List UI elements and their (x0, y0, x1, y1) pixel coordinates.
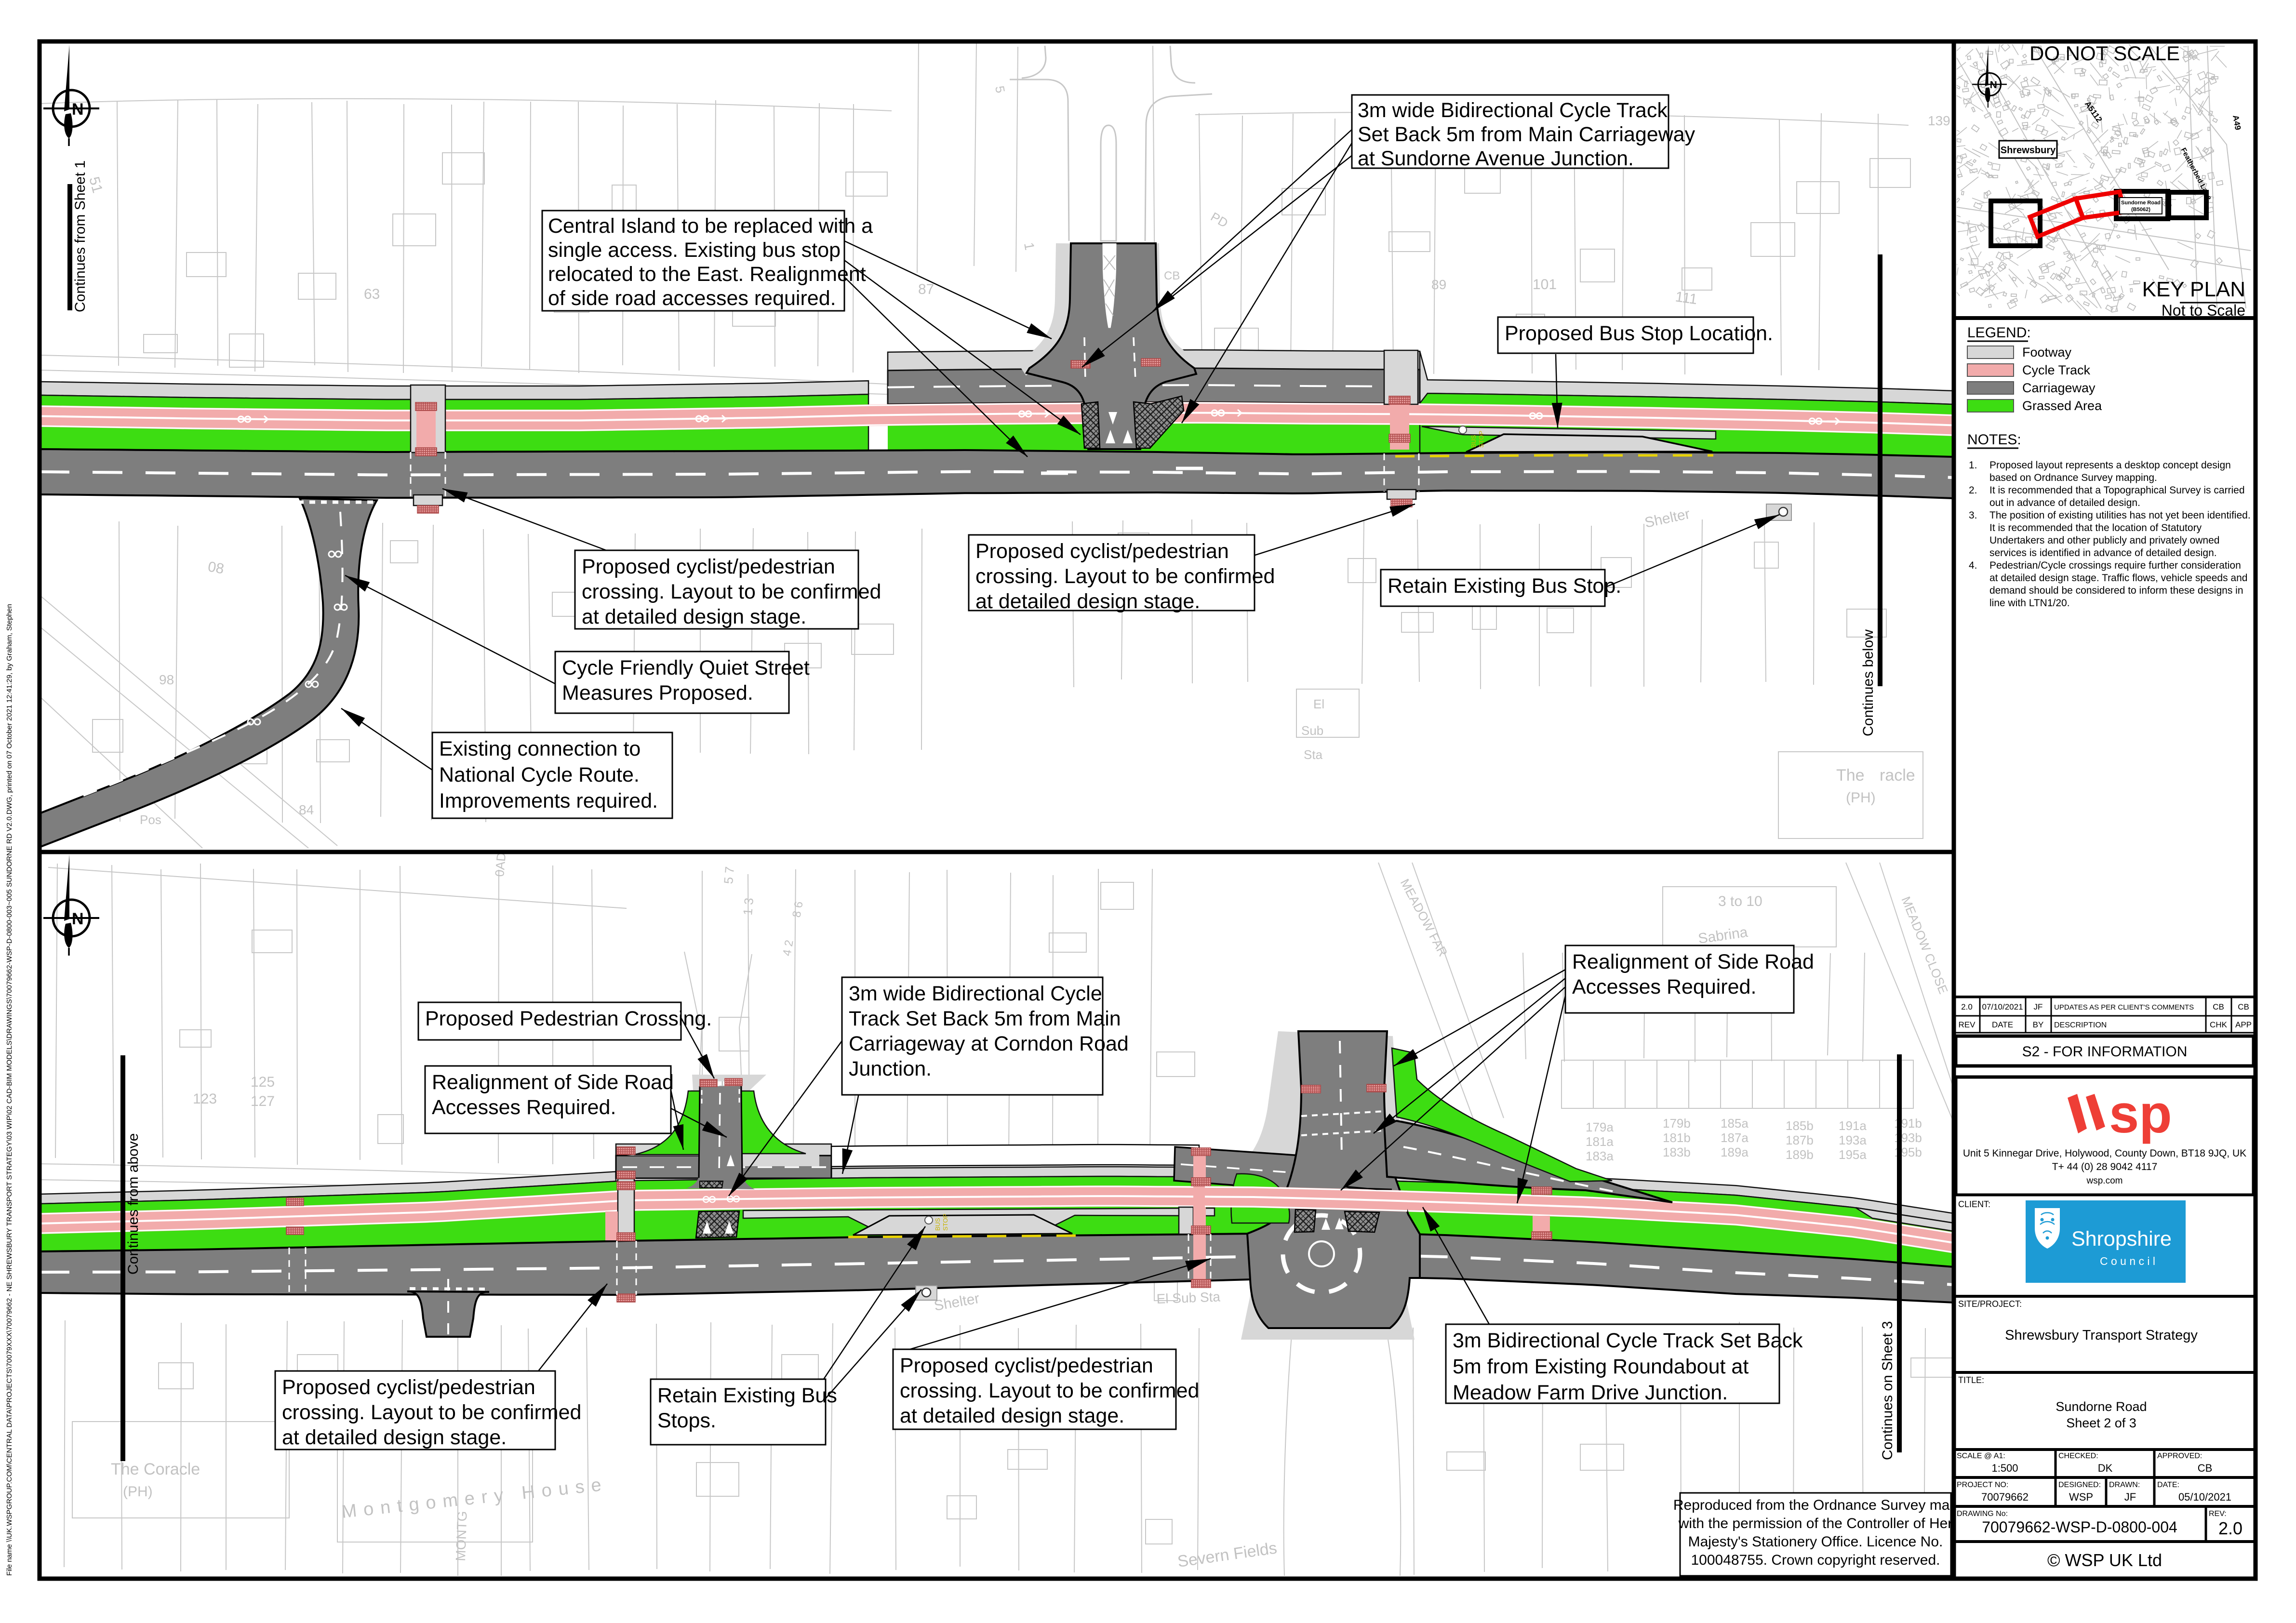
svg-text:189b: 189b (1786, 1147, 1814, 1162)
svg-text:Proposed cyclist/pedestrian: Proposed cyclist/pedestrian (582, 555, 835, 578)
svg-text:Shrewsbury: Shrewsbury (2001, 145, 2056, 156)
svg-text:185a: 185a (1721, 1116, 1749, 1131)
svg-text:(PH): (PH) (123, 1484, 153, 1500)
svg-text:single access. Existing bus st: single access. Existing bus stop (548, 239, 841, 262)
svg-text:4.: 4. (1969, 560, 1977, 571)
svg-text:Proposed Pedestrian Crossing.: Proposed Pedestrian Crossing. (425, 1007, 712, 1030)
svg-text:1:500: 1:500 (1991, 1462, 2018, 1474)
svg-text:(B5062): (B5062) (2131, 207, 2150, 213)
svg-text:T+ 44 (0) 28 9042 4117: T+ 44 (0) 28 9042 4117 (2052, 1161, 2158, 1172)
svg-text:services is identified in adva: services is identified in advance of det… (1989, 547, 2217, 559)
svg-text:The Coracle: The Coracle (111, 1460, 200, 1478)
svg-text:© WSP UK Ltd: © WSP UK Ltd (2047, 1550, 2162, 1570)
svg-text:JF: JF (2124, 1491, 2136, 1503)
svg-text:125: 125 (251, 1074, 275, 1090)
svg-text:Cycle Track: Cycle Track (2022, 363, 2091, 377)
svg-text:5 7: 5 7 (721, 866, 737, 885)
svg-text:CLIENT:: CLIENT: (1958, 1199, 1990, 1209)
svg-text:C o u n c i l: C o u n c i l (2100, 1255, 2155, 1267)
svg-text:racle: racle (1880, 766, 1915, 785)
svg-text:SCALE @ A1:: SCALE @ A1: (1957, 1452, 2005, 1460)
svg-text:Continues on Sheet 3: Continues on Sheet 3 (1880, 1321, 1896, 1460)
svg-text:Sheet 2 of 3: Sheet 2 of 3 (2066, 1416, 2136, 1430)
svg-text:Continues below: Continues below (1860, 629, 1876, 736)
svg-text:Stops.: Stops. (657, 1409, 716, 1432)
svg-text:LEGEND:: LEGEND: (1967, 325, 2031, 341)
svg-text:out in advance of detailed des: out in advance of detailed design. (1989, 497, 2140, 508)
svg-text:BY: BY (2033, 1020, 2044, 1029)
svg-text:111: 111 (1674, 289, 1698, 307)
svg-text:Shrewsbury Transport Strategy: Shrewsbury Transport Strategy (2005, 1328, 2198, 1343)
svg-text:APPROVED:: APPROVED: (2157, 1452, 2202, 1460)
svg-text:Majesty's Stationery Office. L: Majesty's Stationery Office. Licence No. (1688, 1534, 1943, 1550)
svg-text:of side road accesses required: of side road accesses required. (548, 287, 836, 310)
svg-text:El Sub Sta: El Sub Sta (1156, 1289, 1221, 1306)
svg-text:Carriageway at Corndon Road: Carriageway at Corndon Road (849, 1032, 1129, 1055)
svg-text:File name \\UK.WSPGROUP.COM\CE: File name \\UK.WSPGROUP.COM\CENTRAL DATA… (5, 604, 13, 1576)
svg-text:1.: 1. (1969, 460, 1977, 471)
svg-text:line with LTN1/20.: line with LTN1/20. (1989, 598, 2070, 609)
svg-text:181b: 181b (1663, 1131, 1691, 1145)
svg-text:Set Back 5m from Main Carriage: Set Back 5m from Main Carriageway (1358, 123, 1695, 146)
svg-text:Realignment of Side Road: Realignment of Side Road (432, 1071, 674, 1094)
svg-text:Proposed Bus Stop Location.: Proposed Bus Stop Location. (1505, 322, 1773, 345)
svg-text:Junction.: Junction. (849, 1057, 932, 1080)
svg-text:DATE: DATE (1992, 1020, 2013, 1029)
svg-text:It is recommended that a Topog: It is recommended that a Topographical S… (1989, 485, 2245, 496)
svg-text:N: N (72, 100, 84, 119)
svg-text:87: 87 (918, 281, 934, 297)
svg-text:UPDATES AS PER CLIENT'S COMMEN: UPDATES AS PER CLIENT'S COMMENTS (2054, 1003, 2194, 1011)
svg-text:Sundorne Road: Sundorne Road (2056, 1399, 2147, 1414)
svg-text:3 to 10: 3 to 10 (1718, 893, 1762, 909)
svg-text:DESIGNED:: DESIGNED: (2058, 1481, 2101, 1489)
svg-text:185b: 185b (1786, 1118, 1814, 1133)
svg-text:CB: CB (1164, 269, 1180, 282)
svg-text:Unit 5 Kinnegar Drive, Holywoo: Unit 5 Kinnegar Drive, Holywood, County … (1963, 1148, 2246, 1159)
svg-text:demand should be considered to: demand should be considered to inform th… (1989, 585, 2243, 596)
svg-text:El: El (1313, 697, 1324, 711)
svg-text:8 6: 8 6 (790, 900, 805, 918)
svg-text:at detailed design stage.: at detailed design stage. (582, 605, 806, 628)
svg-text:193a: 193a (1839, 1133, 1867, 1147)
svg-text:S2 - FOR INFORMATION: S2 - FOR INFORMATION (2022, 1044, 2188, 1060)
svg-text:wsp.com: wsp.com (2086, 1176, 2123, 1186)
svg-text:63: 63 (364, 286, 380, 302)
svg-text:crossing. Layout to be confirm: crossing. Layout to be confirmed (282, 1401, 581, 1424)
svg-text:with the permission of the Con: with the permission of the Controller of… (1678, 1516, 1953, 1531)
svg-text:Improvements required.: Improvements required. (439, 789, 658, 812)
svg-text:APP: APP (2235, 1020, 2252, 1029)
svg-text:Cycle Friendly Quiet Street: Cycle Friendly Quiet Street (562, 656, 810, 679)
svg-text:1 3: 1 3 (740, 897, 756, 916)
svg-text:Central Island to be replaced: Central Island to be replaced with a (548, 214, 873, 238)
svg-text:Track Set Back 5m from Main: Track Set Back 5m from Main (849, 1007, 1121, 1030)
svg-text:DESCRIPTION: DESCRIPTION (2054, 1021, 2107, 1029)
svg-text:Reproduced from the Ordnance S: Reproduced from the Ordnance Survey map (1673, 1497, 1958, 1513)
svg-text:Proposed layout represents a d: Proposed layout represents a desktop con… (1989, 460, 2231, 471)
svg-text:Existing connection to: Existing connection to (439, 737, 641, 760)
svg-text:sp: sp (2109, 1084, 2172, 1144)
svg-text:based on Ordnance Survey mappi: based on Ordnance Survey mapping. (1989, 472, 2157, 483)
svg-text:CHK: CHK (2210, 1020, 2228, 1029)
svg-text:101: 101 (1533, 277, 1557, 293)
svg-text:BUS: BUS (934, 1218, 941, 1231)
svg-text:Sundorne Road: Sundorne Road (2121, 200, 2161, 206)
svg-text:189a: 189a (1721, 1145, 1749, 1159)
svg-text:Accesses Required.: Accesses Required. (1572, 975, 1756, 998)
svg-text:3m Bidirectional Cycle Track S: 3m Bidirectional Cycle Track Set Back (1453, 1329, 1803, 1352)
svg-text:at detailed design stage.: at detailed design stage. (282, 1426, 507, 1449)
svg-text:crossing. Layout to be confirm: crossing. Layout to be confirmed (900, 1379, 1199, 1402)
svg-text:Proposed cyclist/pedestrian: Proposed cyclist/pedestrian (282, 1376, 535, 1399)
svg-text:Proposed cyclist/pedestrian: Proposed cyclist/pedestrian (975, 540, 1229, 563)
svg-text:Grassed Area: Grassed Area (2022, 399, 2102, 413)
svg-text:KEY PLAN: KEY PLAN (2142, 278, 2245, 301)
svg-text:187a: 187a (1721, 1131, 1749, 1145)
svg-text:Footway: Footway (2022, 345, 2072, 359)
svg-text:National Cycle Route.: National Cycle Route. (439, 763, 640, 786)
svg-text:DRAWN:: DRAWN: (2109, 1481, 2140, 1489)
svg-text:183a: 183a (1586, 1149, 1614, 1163)
svg-text:Measures Proposed.: Measures Proposed. (562, 681, 753, 705)
svg-text:It is recommended that the loc: It is recommended that the location of S… (1989, 522, 2202, 533)
svg-text:TITLE:: TITLE: (1958, 1375, 1984, 1385)
svg-text:2.0: 2.0 (1961, 1002, 1973, 1011)
svg-text:Pos: Pos (140, 812, 161, 827)
svg-text:(PH): (PH) (1846, 790, 1876, 806)
svg-text:127: 127 (251, 1093, 275, 1109)
svg-text:CHECKED:: CHECKED: (2058, 1452, 2098, 1460)
svg-text:Meadow Farm Drive Junction.: Meadow Farm Drive Junction. (1453, 1381, 1728, 1404)
svg-text:Pedestrian/Cycle crossings req: Pedestrian/Cycle crossings require furth… (1989, 560, 2241, 571)
svg-text:CB: CB (2198, 1462, 2213, 1474)
svg-text:at detailed design stage.: at detailed design stage. (975, 590, 1200, 613)
svg-text:5m from Existing Roundabout at: 5m from Existing Roundabout at (1453, 1355, 1749, 1378)
svg-text:Undertakers and other publicly: Undertakers and other publicly and priva… (1989, 535, 2219, 546)
svg-text:Accesses Required.: Accesses Required. (432, 1096, 616, 1119)
svg-text:at Sundorne Avenue Junction.: at Sundorne Avenue Junction. (1358, 147, 1634, 170)
svg-text:Shropshire: Shropshire (2071, 1227, 2172, 1251)
svg-text:NOTES:: NOTES: (1967, 432, 2021, 448)
svg-text:3m wide Bidirectional Cycle: 3m wide Bidirectional Cycle (849, 982, 1102, 1005)
svg-text:at detailed design stage. Traf: at detailed design stage. Traffic flows,… (1989, 572, 2247, 584)
svg-text:Sta: Sta (1304, 747, 1323, 762)
svg-text:100048755. Crown copyright res: 100048755. Crown copyright reserved. (1691, 1552, 1940, 1568)
svg-text:DK: DK (2098, 1462, 2113, 1474)
svg-text:191a: 191a (1839, 1118, 1867, 1133)
svg-text:0AD: 0AD (492, 852, 508, 878)
svg-text:BUS: BUS (1470, 435, 1477, 448)
svg-text:Carriageway: Carriageway (2022, 381, 2096, 395)
svg-text:Continues from Sheet 1: Continues from Sheet 1 (72, 160, 88, 312)
svg-text:181a: 181a (1586, 1134, 1614, 1149)
svg-text:84: 84 (299, 802, 314, 817)
svg-text:DO NOT SCALE: DO NOT SCALE (2029, 42, 2180, 65)
svg-text:2.0: 2.0 (2218, 1518, 2243, 1538)
svg-text:The: The (1836, 766, 1865, 785)
svg-text:Retain Existing Bus Stop.: Retain Existing Bus Stop. (1388, 574, 1621, 598)
svg-text:crossing. Layout to be confirm: crossing. Layout to be confirmed (975, 565, 1275, 588)
svg-text:Retain Existing Bus: Retain Existing Bus (657, 1384, 837, 1407)
svg-text:SITE/PROJECT:: SITE/PROJECT: (1958, 1299, 2022, 1309)
svg-text:DRAWING No:: DRAWING No: (1957, 1510, 2008, 1518)
svg-text:Realignment of Side Road: Realignment of Side Road (1572, 950, 1814, 973)
svg-text:08: 08 (207, 559, 226, 577)
svg-text:3m wide Bidirectional Cycle Tr: 3m wide Bidirectional Cycle Track (1358, 99, 1668, 122)
svg-text:187b: 187b (1786, 1133, 1814, 1147)
svg-text:139: 139 (1928, 113, 1950, 128)
svg-text:The position of existing utili: The position of existing utilities has n… (1989, 510, 2251, 521)
svg-text:N: N (72, 910, 84, 928)
svg-text:MONTG: MONTG (453, 1511, 470, 1561)
svg-text:3.: 3. (1969, 510, 1977, 521)
svg-text:PROJECT NO:: PROJECT NO: (1957, 1481, 2008, 1489)
svg-text:123: 123 (193, 1091, 217, 1107)
svg-text:2.: 2. (1969, 485, 1977, 496)
svg-text:STOP: STOP (1478, 431, 1485, 448)
svg-text:N: N (1990, 80, 1997, 91)
svg-text:98: 98 (159, 672, 174, 687)
svg-text:Continues from above: Continues from above (125, 1133, 141, 1275)
svg-text:Proposed cyclist/pedestrian: Proposed cyclist/pedestrian (900, 1354, 1153, 1377)
svg-text:REV: REV (1959, 1020, 1976, 1029)
svg-text:195a: 195a (1839, 1147, 1867, 1162)
svg-text:JF: JF (2034, 1002, 2043, 1011)
svg-text:179a: 179a (1586, 1120, 1614, 1134)
svg-text:4 2: 4 2 (780, 939, 796, 957)
svg-text:CB: CB (2238, 1002, 2249, 1011)
svg-text:05/10/2021: 05/10/2021 (2178, 1491, 2231, 1503)
svg-text:179b: 179b (1663, 1116, 1691, 1131)
svg-text:70079662-WSP-D-0800-004: 70079662-WSP-D-0800-004 (1982, 1518, 2177, 1536)
svg-text:at detailed design stage.: at detailed design stage. (900, 1404, 1124, 1427)
svg-text:Sub: Sub (1301, 723, 1323, 738)
svg-text:STOP: STOP (942, 1214, 949, 1231)
svg-text:183b: 183b (1663, 1145, 1691, 1159)
svg-text:REV:: REV: (2209, 1510, 2227, 1518)
svg-text:relocated to the East. Realign: relocated to the East. Realignment (548, 263, 866, 286)
svg-text:DATE:: DATE: (2157, 1481, 2179, 1489)
svg-text:70079662: 70079662 (1981, 1491, 2029, 1503)
svg-text:07/10/2021: 07/10/2021 (1982, 1002, 2023, 1011)
svg-text:89: 89 (1431, 277, 1446, 292)
svg-text:WSP: WSP (2069, 1491, 2093, 1503)
svg-text:CB: CB (2213, 1002, 2224, 1011)
svg-text:crossing. Layout to be confirm: crossing. Layout to be confirmed (582, 580, 881, 603)
